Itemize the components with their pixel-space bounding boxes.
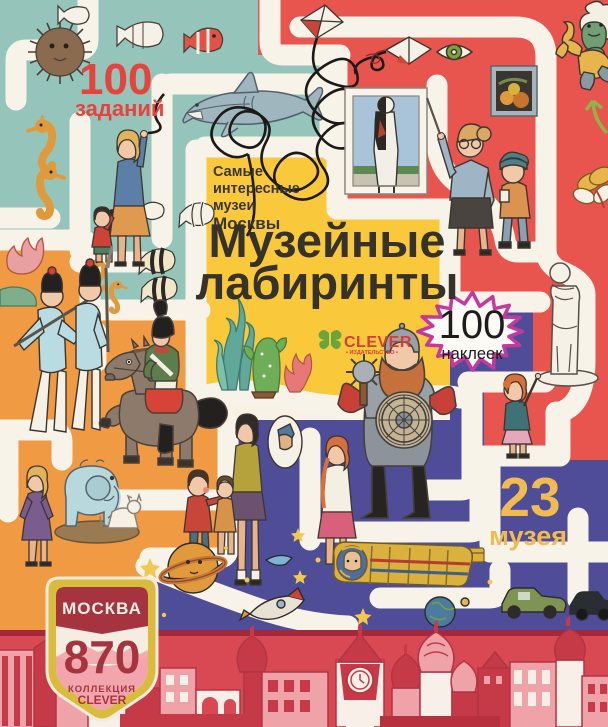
svg-text:100: 100 bbox=[439, 303, 506, 347]
svg-text:музея: музея bbox=[489, 521, 567, 551]
svg-text:23: 23 bbox=[499, 466, 560, 528]
svg-text:CLEVER: CLEVER bbox=[344, 334, 412, 351]
svg-text:интересные: интересные bbox=[213, 181, 300, 197]
svg-text:• ИЗДАТЕЛЬСТВО •: • ИЗДАТЕЛЬСТВО • bbox=[346, 350, 398, 356]
svg-text:870: 870 bbox=[64, 631, 141, 683]
svg-text:МОСКВА: МОСКВА bbox=[62, 599, 142, 618]
svg-text:Самые: Самые bbox=[213, 164, 263, 180]
svg-text:музеи: музеи bbox=[213, 198, 255, 214]
svg-text:CLEVER: CLEVER bbox=[78, 693, 127, 707]
svg-text:лабиринты: лабиринты bbox=[195, 256, 458, 309]
svg-text:заданий: заданий bbox=[75, 96, 164, 121]
svg-text:наклеек: наклеек bbox=[442, 345, 504, 363]
